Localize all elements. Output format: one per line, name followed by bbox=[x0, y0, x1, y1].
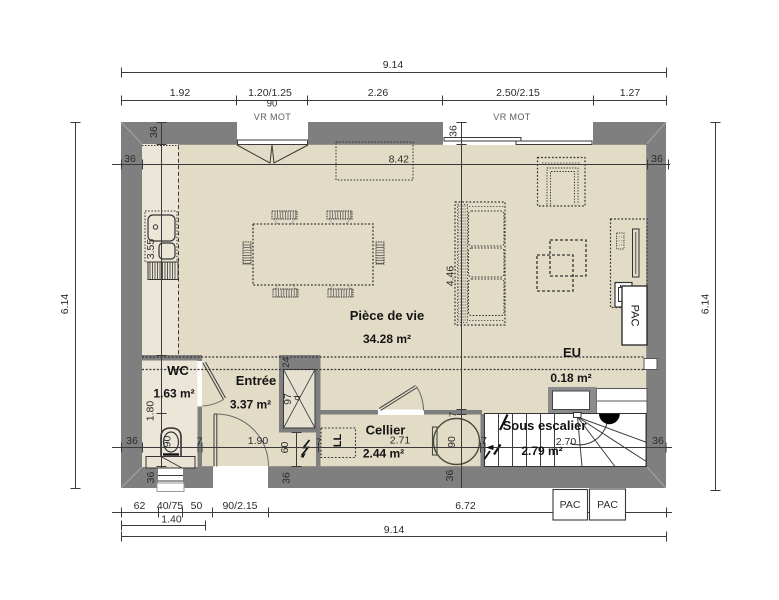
svg-text:36: 36 bbox=[281, 472, 293, 484]
svg-text:d: d bbox=[292, 395, 303, 400]
svg-text:4.46: 4.46 bbox=[445, 266, 457, 287]
svg-text:LL: LL bbox=[332, 434, 344, 448]
svg-text:36: 36 bbox=[448, 125, 460, 137]
svg-text:2.44 m²: 2.44 m² bbox=[363, 447, 404, 461]
svg-text:VR MOT: VR MOT bbox=[493, 112, 531, 122]
svg-text:3.55: 3.55 bbox=[145, 239, 157, 260]
svg-text:50: 50 bbox=[191, 500, 203, 512]
svg-text:Entrée: Entrée bbox=[236, 373, 276, 388]
svg-text:9.14: 9.14 bbox=[383, 59, 404, 71]
svg-text:2.50/2.15: 2.50/2.15 bbox=[496, 87, 540, 99]
svg-text:36: 36 bbox=[651, 153, 663, 165]
svg-text:90: 90 bbox=[446, 436, 458, 448]
svg-text:36: 36 bbox=[124, 153, 136, 165]
svg-text:36: 36 bbox=[126, 435, 138, 447]
svg-text:0.18 m²: 0.18 m² bbox=[550, 371, 591, 385]
svg-text:VR MOT: VR MOT bbox=[254, 112, 292, 122]
svg-text:40/75: 40/75 bbox=[157, 500, 183, 512]
svg-text:PAC: PAC bbox=[597, 499, 618, 511]
svg-text:Sous escalier: Sous escalier bbox=[503, 418, 587, 433]
svg-text:2.26: 2.26 bbox=[368, 87, 389, 99]
svg-text:2.79 m²: 2.79 m² bbox=[521, 444, 562, 458]
svg-text:62: 62 bbox=[134, 500, 146, 512]
svg-text:36: 36 bbox=[652, 435, 664, 447]
svg-text:90: 90 bbox=[162, 436, 174, 448]
svg-text:Cellier: Cellier bbox=[366, 423, 406, 438]
svg-text:WC: WC bbox=[167, 363, 189, 378]
svg-text:EU: EU bbox=[563, 345, 581, 360]
svg-text:36: 36 bbox=[145, 472, 157, 484]
svg-text:8.42: 8.42 bbox=[389, 154, 410, 166]
svg-text:7: 7 bbox=[316, 437, 321, 448]
svg-text:1.92: 1.92 bbox=[170, 87, 191, 99]
svg-text:90: 90 bbox=[267, 99, 278, 110]
svg-text:1.27: 1.27 bbox=[620, 87, 641, 99]
svg-text:1.40: 1.40 bbox=[161, 514, 182, 526]
svg-text:9.14: 9.14 bbox=[384, 524, 405, 536]
svg-text:6.14: 6.14 bbox=[700, 294, 712, 315]
svg-text:24: 24 bbox=[281, 357, 292, 368]
svg-text:Pièce de vie: Pièce de vie bbox=[350, 308, 424, 323]
svg-text:PAC: PAC bbox=[629, 305, 641, 327]
svg-text:36: 36 bbox=[148, 126, 160, 138]
svg-text:1.90: 1.90 bbox=[248, 435, 269, 447]
svg-text:7: 7 bbox=[448, 412, 459, 417]
svg-text:90/2.15: 90/2.15 bbox=[222, 500, 257, 512]
svg-text:7: 7 bbox=[481, 435, 487, 447]
svg-text:60: 60 bbox=[279, 442, 291, 454]
svg-text:6.72: 6.72 bbox=[455, 500, 476, 512]
svg-text:7: 7 bbox=[197, 436, 203, 448]
svg-text:36: 36 bbox=[444, 470, 456, 482]
svg-text:3.37 m²: 3.37 m² bbox=[230, 398, 271, 412]
svg-text:1.80: 1.80 bbox=[145, 401, 157, 422]
svg-text:1.20/1.25: 1.20/1.25 bbox=[248, 87, 292, 99]
svg-text:34.28 m²: 34.28 m² bbox=[363, 332, 411, 346]
svg-text:6.14: 6.14 bbox=[59, 294, 71, 315]
svg-text:PAC: PAC bbox=[560, 499, 581, 511]
svg-text:1.63 m²: 1.63 m² bbox=[153, 387, 194, 401]
